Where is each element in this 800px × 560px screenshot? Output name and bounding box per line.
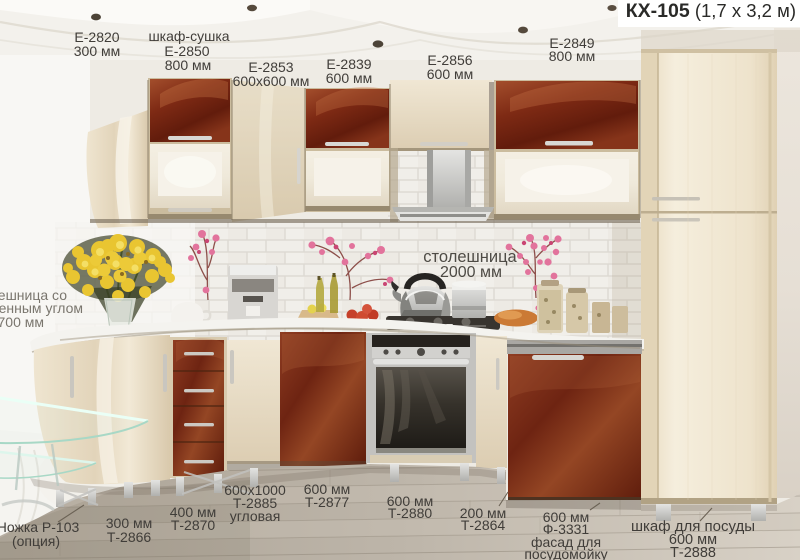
svg-text:Т-2870: Т-2870: [171, 517, 216, 533]
svg-text:(опция): (опция): [12, 533, 60, 549]
svg-text:Т-2880: Т-2880: [388, 505, 433, 521]
svg-text:700 мм: 700 мм: [0, 314, 44, 330]
svg-text:2000 мм: 2000 мм: [440, 264, 502, 281]
svg-text:Т-2864: Т-2864: [461, 517, 506, 533]
svg-text:800 мм: 800 мм: [549, 48, 596, 64]
svg-text:посудомойку: посудомойку: [524, 546, 607, 560]
svg-text:Т-2866: Т-2866: [107, 529, 152, 545]
svg-text:300 мм: 300 мм: [74, 43, 121, 59]
svg-text:Т-2888: Т-2888: [670, 545, 716, 560]
svg-text:шкаф-сушка: шкаф-сушка: [148, 28, 229, 44]
svg-text:600 мм: 600 мм: [427, 66, 474, 82]
svg-text:Т-2877: Т-2877: [305, 494, 350, 510]
svg-text:угловая: угловая: [230, 508, 281, 524]
svg-text:КХ-105 (1,7 х 3,2 м): КХ-105 (1,7 х 3,2 м): [626, 0, 796, 22]
svg-text:600х600 мм: 600х600 мм: [233, 73, 310, 89]
svg-text:600 мм: 600 мм: [326, 70, 373, 86]
svg-text:800 мм: 800 мм: [165, 57, 212, 73]
